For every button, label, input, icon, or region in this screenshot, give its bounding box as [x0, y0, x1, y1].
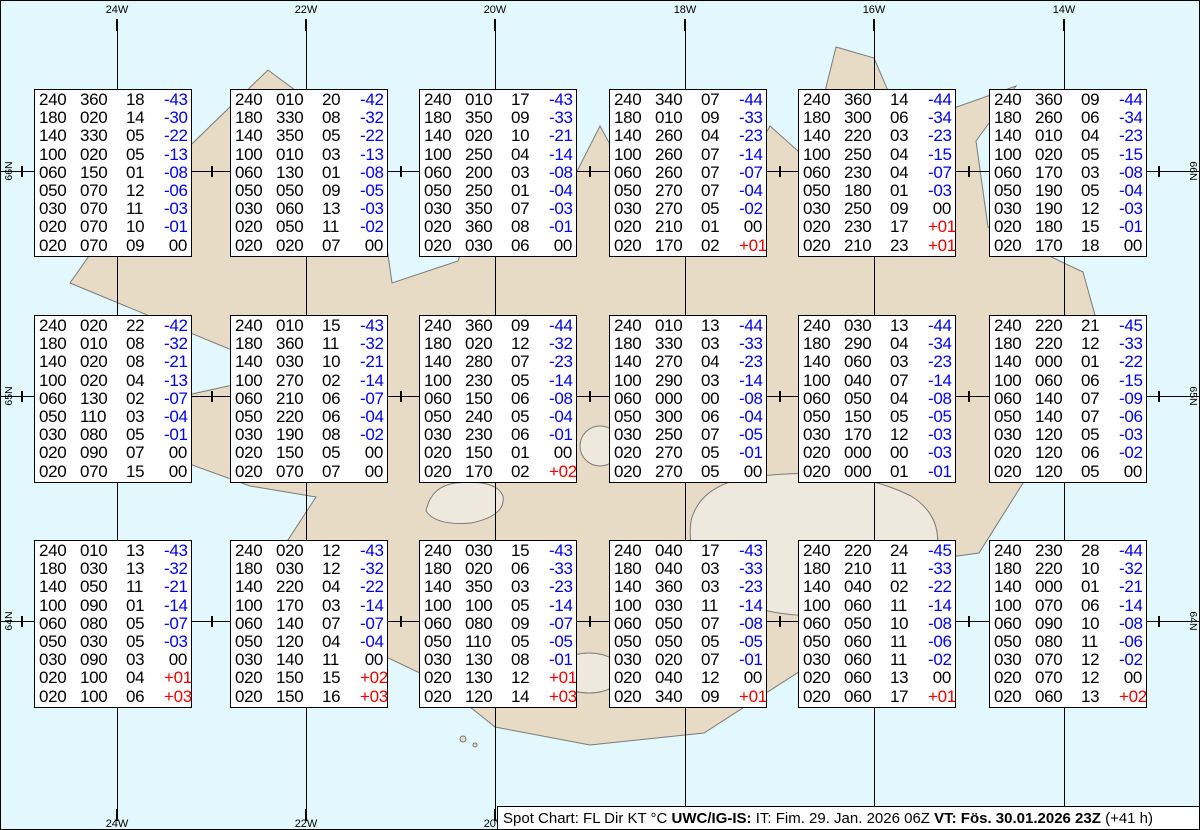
temperature-value: -13 [164, 372, 192, 390]
wind-speed-value: 01 [322, 164, 360, 182]
temperature-value: -14 [928, 372, 956, 390]
temperature-value: -33 [739, 335, 767, 353]
wind-direction-value: 140 [1035, 408, 1081, 426]
data-row: 10002005-15 [990, 146, 1146, 164]
flight-level-value: 140 [799, 353, 844, 371]
data-row: 03019008-02 [231, 426, 387, 444]
temperature-value: 00 [739, 463, 766, 481]
data-row: 05027007-04 [610, 182, 766, 200]
flight-level-value: 060 [799, 390, 844, 408]
temperature-value: -33 [928, 560, 956, 578]
data-row: 0200601300 [799, 669, 955, 687]
temperature-value: -32 [164, 335, 192, 353]
wind-direction-value: 030 [844, 317, 890, 335]
data-row: 18022010-32 [990, 560, 1146, 578]
wind-direction-value: 240 [465, 408, 511, 426]
temperature-value: -08 [739, 390, 767, 408]
wind-speed-value: 03 [701, 372, 739, 390]
wind-speed-value: 10 [890, 615, 928, 633]
wind-direction-value: 010 [465, 91, 511, 109]
data-row: 10027002-14 [231, 372, 387, 390]
wind-direction-value: 030 [80, 560, 126, 578]
wind-direction-value: 070 [80, 237, 126, 255]
wind-speed-value: 09 [1081, 91, 1119, 109]
flight-level-value: 030 [799, 200, 844, 218]
flight-level-value: 100 [799, 597, 844, 615]
temperature-value: 00 [739, 669, 766, 687]
wind-speed-value: 13 [701, 317, 739, 335]
data-row: 03017012-03 [799, 426, 955, 444]
temperature-value: 00 [164, 444, 191, 462]
wind-direction-value: 130 [80, 390, 126, 408]
wind-speed-value: 05 [511, 633, 549, 651]
flight-level-value: 050 [799, 182, 844, 200]
wind-speed-value: 16 [322, 688, 360, 706]
temperature-value: -32 [1119, 560, 1147, 578]
flight-level-value: 180 [35, 560, 80, 578]
data-row: 18033003-33 [610, 335, 766, 353]
temperature-value: -21 [164, 353, 192, 371]
data-row: 10002005-13 [35, 146, 191, 164]
temperature-value: -08 [549, 390, 577, 408]
temperature-value: -23 [1119, 127, 1147, 145]
wind-speed-value: 01 [511, 444, 549, 462]
wind-direction-value: 100 [465, 597, 511, 615]
temperature-value: 00 [1119, 463, 1146, 481]
flight-level-value: 140 [990, 127, 1035, 145]
data-row: 05011003-04 [35, 408, 191, 426]
wind-direction-value: 300 [655, 408, 701, 426]
data-row: 24023028-44 [990, 542, 1146, 560]
wind-direction-value: 140 [1035, 390, 1081, 408]
wind-speed-value: 18 [1081, 237, 1119, 255]
wind-speed-value: 11 [322, 335, 360, 353]
wind-speed-value: 07 [701, 651, 739, 669]
temperature-value: -02 [1119, 651, 1147, 669]
flight-level-value: 050 [420, 633, 465, 651]
data-row: 0202100100 [610, 218, 766, 236]
wind-speed-value: 10 [322, 353, 360, 371]
temperature-value: -08 [928, 390, 956, 408]
temperature-value: -44 [739, 91, 767, 109]
wind-speed-value: 03 [126, 408, 164, 426]
temperature-value: -02 [928, 651, 956, 669]
temperature-value: -07 [164, 615, 192, 633]
wind-speed-value: 06 [322, 390, 360, 408]
flight-level-value: 020 [420, 444, 465, 462]
wind-speed-value: 05 [701, 633, 739, 651]
wind-speed-value: 03 [701, 560, 739, 578]
wind-speed-value: 10 [1081, 615, 1119, 633]
data-row: 14035003-23 [420, 578, 576, 596]
temperature-value: -01 [164, 218, 192, 236]
wind-speed-value: 22 [126, 317, 164, 335]
data-row: 06015006-08 [420, 390, 576, 408]
flight-level-value: 060 [990, 164, 1035, 182]
temperature-value: -32 [164, 560, 192, 578]
wind-speed-value: 12 [322, 542, 360, 560]
data-row: 14022004-22 [231, 578, 387, 596]
flight-level-value: 030 [420, 426, 465, 444]
wind-speed-value: 08 [126, 353, 164, 371]
wind-direction-value: 020 [1035, 146, 1081, 164]
wind-speed-value: 06 [1081, 597, 1119, 615]
temperature-value: 00 [360, 237, 387, 255]
status-issue-time: IT: Fim. 29. Jan. 2026 06Z [752, 810, 935, 827]
temperature-value: +01 [739, 688, 767, 706]
spot-data-box: 24034007-4418001009-3314026004-231002600… [609, 89, 767, 257]
data-row: 05007012-06 [35, 182, 191, 200]
wind-direction-value: 120 [1035, 463, 1081, 481]
wind-direction-value: 060 [844, 669, 890, 687]
temperature-value: -01 [164, 426, 192, 444]
wind-direction-value: 230 [465, 372, 511, 390]
data-row: 02000000-03 [799, 444, 955, 462]
wind-speed-value: 01 [701, 218, 739, 236]
wind-speed-value: 07 [1081, 390, 1119, 408]
data-row: 10003011-14 [610, 597, 766, 615]
wind-direction-value: 170 [1035, 164, 1081, 182]
data-row: 14035005-22 [231, 127, 387, 145]
wind-speed-value: 23 [890, 237, 928, 255]
wind-speed-value: 06 [322, 408, 360, 426]
temperature-value: 00 [164, 237, 191, 255]
wind-speed-value: 05 [322, 127, 360, 145]
data-row: 14003010-21 [231, 353, 387, 371]
flight-level-value: 140 [610, 353, 655, 371]
data-row: 03035007-03 [420, 200, 576, 218]
temperature-value: -32 [360, 335, 388, 353]
temperature-value: -44 [928, 317, 956, 335]
flight-level-value: 100 [990, 372, 1035, 390]
spot-data-box: 24036009-4418002012-3214028007-231002300… [419, 315, 577, 483]
wind-speed-value: 12 [126, 182, 164, 200]
wind-speed-value: 09 [511, 615, 549, 633]
data-row: 10001003-13 [231, 146, 387, 164]
wind-speed-value: 03 [322, 597, 360, 615]
data-row: 0201500100 [420, 444, 576, 462]
flight-level-value: 020 [231, 669, 276, 687]
data-row: 0200200700 [231, 237, 387, 255]
data-row: 10007006-14 [990, 597, 1146, 615]
data-row: 05015005-05 [799, 408, 955, 426]
temperature-value: 00 [928, 669, 955, 687]
data-row: 02021023+01 [799, 237, 955, 255]
temperature-value: -03 [928, 426, 956, 444]
status-org: UWC/IG-IS: [672, 810, 752, 827]
spot-data-box: 24036018-4318002014-3014033005-221000200… [34, 89, 192, 257]
wind-direction-value: 060 [1035, 688, 1081, 706]
flight-level-value: 100 [610, 146, 655, 164]
wind-speed-value: 05 [126, 127, 164, 145]
wind-speed-value: 05 [1081, 182, 1119, 200]
flight-level-value: 100 [610, 372, 655, 390]
flight-level-value: 180 [990, 335, 1035, 353]
data-row: 06021006-07 [231, 390, 387, 408]
wind-direction-value: 290 [655, 372, 701, 390]
wind-speed-value: 11 [126, 578, 164, 596]
wind-direction-value: 010 [80, 542, 126, 560]
data-row: 03007011-03 [35, 200, 191, 218]
temperature-value: 00 [164, 463, 191, 481]
wind-speed-value: 13 [126, 560, 164, 578]
wind-speed-value: 05 [126, 633, 164, 651]
wind-speed-value: 05 [126, 615, 164, 633]
wind-speed-value: 07 [701, 615, 739, 633]
data-row: 05005005-05 [610, 633, 766, 651]
flight-level-value: 180 [420, 109, 465, 127]
temperature-value: +01 [928, 688, 956, 706]
data-row: 10025004-15 [799, 146, 955, 164]
wind-direction-value: 030 [80, 633, 126, 651]
flight-level-value: 060 [35, 390, 80, 408]
wind-speed-value: 07 [701, 182, 739, 200]
wind-direction-value: 250 [655, 426, 701, 444]
wind-speed-value: 07 [511, 353, 549, 371]
wind-speed-value: 06 [1081, 444, 1119, 462]
wind-direction-value: 130 [465, 651, 511, 669]
wind-direction-value: 270 [655, 200, 701, 218]
wind-speed-value: 12 [1081, 200, 1119, 218]
flight-level-value: 180 [610, 335, 655, 353]
data-row: 18022012-33 [990, 335, 1146, 353]
wind-speed-value: 01 [1081, 353, 1119, 371]
data-row: 24001020-42 [231, 91, 387, 109]
wind-direction-value: 010 [276, 317, 322, 335]
wind-speed-value: 07 [322, 237, 360, 255]
data-row: 06008009-07 [420, 615, 576, 633]
wind-direction-value: 020 [465, 335, 511, 353]
wind-speed-value: 07 [701, 164, 739, 182]
flight-level-value: 050 [990, 408, 1035, 426]
flight-level-value: 030 [610, 200, 655, 218]
wind-speed-value: 20 [322, 91, 360, 109]
flight-level-value: 180 [420, 560, 465, 578]
temperature-value: -22 [360, 578, 388, 596]
data-row: 10023005-14 [420, 372, 576, 390]
wind-direction-value: 150 [465, 444, 511, 462]
wind-direction-value: 010 [1035, 127, 1081, 145]
spot-data-box: 24001017-4318035009-3314002010-211002500… [419, 89, 577, 257]
wind-direction-value: 020 [80, 353, 126, 371]
flight-level-value: 030 [231, 651, 276, 669]
temperature-value: -05 [928, 408, 956, 426]
wind-speed-value: 07 [322, 463, 360, 481]
wind-speed-value: 09 [511, 317, 549, 335]
data-row: 18035009-33 [420, 109, 576, 127]
temperature-value: -23 [739, 353, 767, 371]
wind-speed-value: 04 [890, 164, 928, 182]
data-row: 05030006-04 [610, 408, 766, 426]
wind-speed-value: 08 [511, 651, 549, 669]
temperature-value: -07 [360, 615, 388, 633]
flight-level-value: 180 [799, 109, 844, 127]
flight-level-value: 020 [610, 237, 655, 255]
wind-direction-value: 360 [80, 91, 126, 109]
data-row: 24036018-43 [35, 91, 191, 109]
flight-level-value: 030 [799, 651, 844, 669]
flight-level-value: 020 [420, 237, 465, 255]
data-row: 06013001-08 [231, 164, 387, 182]
flight-level-value: 140 [231, 578, 276, 596]
flight-level-value: 030 [990, 200, 1035, 218]
wind-direction-value: 130 [465, 669, 511, 687]
data-row: 05025001-04 [420, 182, 576, 200]
wind-direction-value: 060 [276, 200, 322, 218]
temperature-value: -05 [739, 633, 767, 651]
wind-speed-value: 08 [322, 426, 360, 444]
temperature-value: -06 [1119, 408, 1147, 426]
data-row: 06013002-07 [35, 390, 191, 408]
temperature-value: -21 [1119, 578, 1147, 596]
temperature-value: +02 [549, 463, 577, 481]
temperature-value: -02 [360, 218, 388, 236]
wind-direction-value: 110 [465, 633, 511, 651]
wind-direction-value: 170 [1035, 237, 1081, 255]
spot-data-box: 24002022-4218001008-3214002008-211000200… [34, 315, 192, 483]
data-row: 02012006-02 [990, 444, 1146, 462]
spot-data-box: 24001015-4318036011-3214003010-211002700… [230, 315, 388, 483]
wind-speed-value: 12 [511, 669, 549, 687]
flight-level-value: 050 [420, 182, 465, 200]
flight-level-value: 060 [35, 164, 80, 182]
temperature-value: 00 [360, 463, 387, 481]
wind-speed-value: 05 [701, 200, 739, 218]
data-row: 24004017-43 [610, 542, 766, 560]
wind-speed-value: 04 [126, 372, 164, 390]
data-row: 10006011-14 [799, 597, 955, 615]
flight-level-value: 060 [420, 390, 465, 408]
data-row: 24003015-43 [420, 542, 576, 560]
wind-speed-value: 11 [322, 651, 360, 669]
flight-level-value: 020 [799, 444, 844, 462]
wind-direction-value: 170 [276, 597, 322, 615]
flight-level-value: 100 [231, 597, 276, 615]
data-row: 10026007-14 [610, 146, 766, 164]
wind-direction-value: 170 [465, 463, 511, 481]
wind-direction-value: 040 [655, 542, 701, 560]
data-row: 03002007-01 [610, 651, 766, 669]
spot-data-box: 24022024-4518021011-3314004002-221000601… [798, 540, 956, 708]
data-row: 14033005-22 [35, 127, 191, 145]
temperature-value: +01 [928, 237, 956, 255]
wind-direction-value: 040 [655, 560, 701, 578]
wind-speed-value: 02 [890, 578, 928, 596]
data-row: 18029004-34 [799, 335, 955, 353]
flight-level-value: 060 [231, 164, 276, 182]
wind-speed-value: 10 [511, 127, 549, 145]
wind-direction-value: 210 [844, 237, 890, 255]
data-row: 05005009-05 [231, 182, 387, 200]
spot-data-box: 24001013-4318003013-3214005011-211000900… [34, 540, 192, 708]
temperature-value: -02 [360, 426, 388, 444]
temperature-value: 00 [549, 237, 576, 255]
wind-speed-value: 04 [701, 353, 739, 371]
flight-level-value: 180 [231, 335, 276, 353]
flight-level-value: 060 [231, 390, 276, 408]
data-row: 03006011-02 [799, 651, 955, 669]
flight-level-value: 020 [231, 218, 276, 236]
temperature-value: -14 [549, 146, 577, 164]
flight-level-value: 050 [990, 182, 1035, 200]
wind-direction-value: 150 [80, 164, 126, 182]
flight-level-value: 030 [231, 426, 276, 444]
flight-level-value: 020 [799, 688, 844, 706]
data-row: 06005004-08 [799, 390, 955, 408]
data-row: 14002008-21 [35, 353, 191, 371]
flight-level-value: 030 [231, 200, 276, 218]
temperature-value: -04 [164, 408, 192, 426]
data-row: 05014007-06 [990, 408, 1146, 426]
data-row: 03012005-03 [990, 426, 1146, 444]
data-row: 14004002-22 [799, 578, 955, 596]
wind-speed-value: 02 [701, 237, 739, 255]
spot-data-box: 24022021-4518022012-3314000001-221000600… [989, 315, 1147, 483]
flight-level-value: 100 [799, 146, 844, 164]
wind-speed-value: 13 [1081, 688, 1119, 706]
wind-direction-value: 250 [465, 182, 511, 200]
wind-speed-value: 13 [890, 669, 928, 687]
wind-speed-value: 06 [701, 408, 739, 426]
wind-direction-value: 070 [1035, 651, 1081, 669]
wind-direction-value: 030 [465, 237, 511, 255]
data-row: 05011005-05 [420, 633, 576, 651]
wind-speed-value: 08 [126, 335, 164, 353]
wind-direction-value: 220 [844, 127, 890, 145]
wind-direction-value: 030 [465, 542, 511, 560]
temperature-value: -03 [549, 200, 577, 218]
wind-direction-value: 040 [655, 669, 701, 687]
data-row: 0202700500 [610, 463, 766, 481]
wind-direction-value: 180 [844, 182, 890, 200]
wind-direction-value: 050 [655, 633, 701, 651]
data-row: 0301401100 [231, 651, 387, 669]
temperature-value: -33 [549, 109, 577, 127]
data-row: 06020003-08 [420, 164, 576, 182]
wind-direction-value: 120 [465, 688, 511, 706]
wind-direction-value: 170 [655, 237, 701, 255]
temperature-value: -21 [360, 353, 388, 371]
wind-speed-value: 07 [511, 200, 549, 218]
flight-level-value: 020 [35, 444, 80, 462]
flight-level-value: 030 [610, 651, 655, 669]
temperature-value: -45 [1119, 317, 1147, 335]
temperature-value: -14 [928, 597, 956, 615]
temperature-value: -02 [1119, 444, 1147, 462]
flight-level-value: 100 [420, 372, 465, 390]
data-row: 0300900300 [35, 651, 191, 669]
temperature-value: -04 [1119, 182, 1147, 200]
wind-speed-value: 08 [511, 218, 549, 236]
data-row: 24001017-43 [420, 91, 576, 109]
flight-level-value: 020 [420, 218, 465, 236]
flight-level-value: 100 [799, 372, 844, 390]
wind-speed-value: 02 [511, 463, 549, 481]
flight-level-value: 060 [610, 164, 655, 182]
temperature-value: -08 [739, 615, 767, 633]
data-row: 14036003-23 [610, 578, 766, 596]
flight-level-value: 020 [799, 669, 844, 687]
flight-level-value: 030 [990, 426, 1035, 444]
wind-speed-value: 12 [1081, 669, 1119, 687]
data-row: 18004003-33 [610, 560, 766, 578]
wind-speed-value: 17 [890, 218, 928, 236]
wind-speed-value: 03 [701, 578, 739, 596]
flight-level-value: 020 [990, 688, 1035, 706]
data-row: 0200700700 [231, 463, 387, 481]
flight-level-value: 020 [610, 444, 655, 462]
wind-direction-value: 050 [276, 182, 322, 200]
